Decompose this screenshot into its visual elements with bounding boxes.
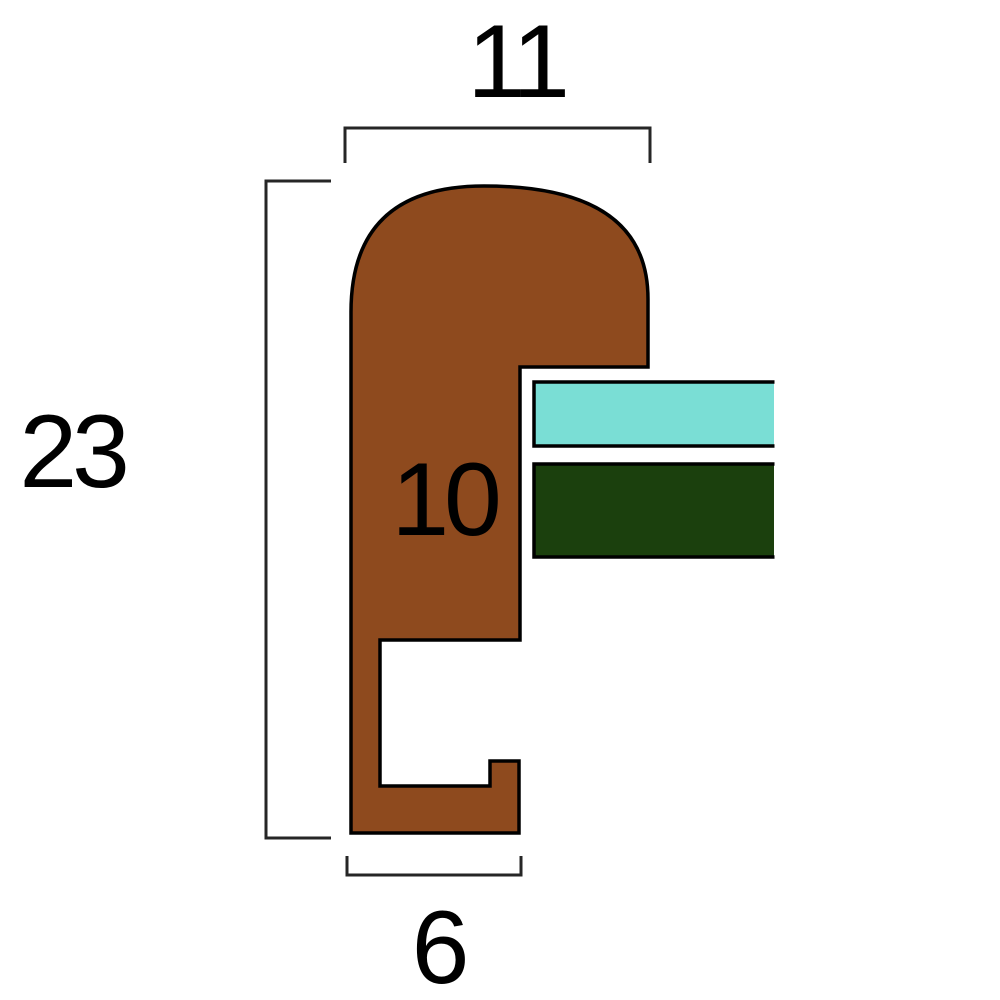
dimension-label-bottom-width: 6 bbox=[412, 890, 466, 1000]
dimension-bracket-top-width bbox=[345, 128, 650, 163]
dimension-label-top-width: 11 bbox=[467, 4, 565, 120]
diagram-canvas: 11 23 10 6 bbox=[0, 0, 1000, 1000]
dimension-label-rabbet-opening: 10 bbox=[391, 442, 498, 558]
backboard-panel bbox=[534, 464, 774, 557]
dimension-bracket-overall-height bbox=[266, 181, 331, 838]
dimension-bracket-bottom-width bbox=[347, 856, 521, 875]
moulding-cross-section-diagram: 11 23 10 6 bbox=[0, 0, 1000, 1000]
glass-panel bbox=[534, 382, 774, 446]
dimension-label-overall-height: 23 bbox=[19, 394, 126, 510]
